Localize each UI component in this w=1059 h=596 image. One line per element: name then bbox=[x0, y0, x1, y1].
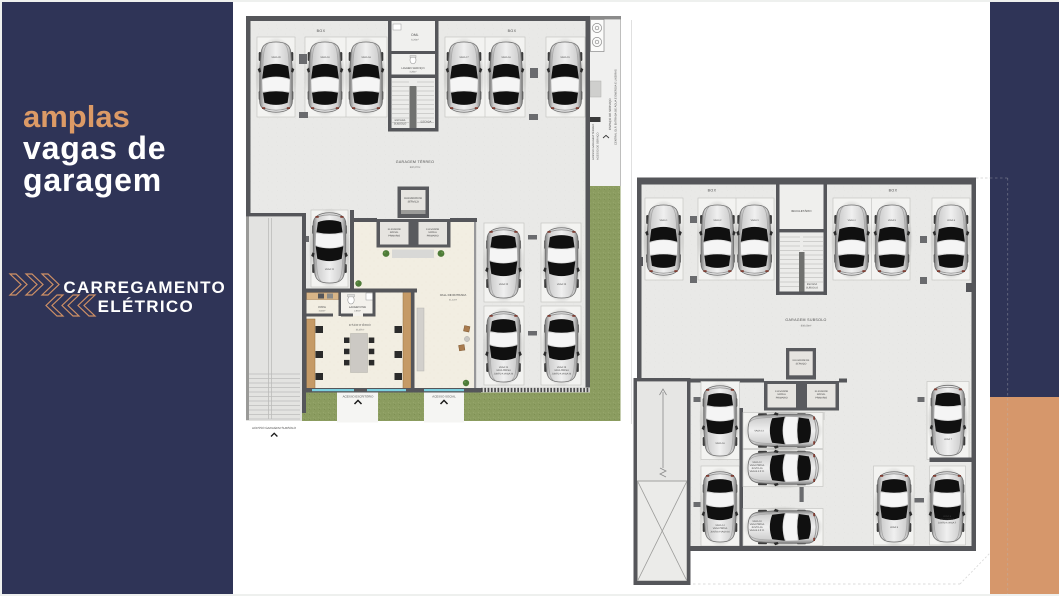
svg-text:VAGAS 9 E 11: VAGAS 9 E 11 bbox=[750, 529, 766, 532]
svg-text:VAGA 15: VAGA 15 bbox=[560, 56, 570, 59]
svg-text:VAGA 10: VAGA 10 bbox=[752, 520, 762, 523]
svg-text:VAGA 25: VAGA 25 bbox=[557, 366, 567, 369]
svg-text:VAGA 17: VAGA 17 bbox=[459, 56, 469, 59]
svg-text:JUNTO A VAGA 23: JUNTO A VAGA 23 bbox=[552, 372, 572, 375]
svg-text:VAGA 16: VAGA 16 bbox=[715, 442, 725, 445]
svg-text:3,68m²: 3,68m² bbox=[319, 310, 326, 313]
svg-text:LAVABO SERVIÇO: LAVABO SERVIÇO bbox=[401, 67, 424, 70]
svg-text:GARAGEM TÉRREO: GARAGEM TÉRREO bbox=[396, 159, 434, 164]
svg-text:VAGA 20: VAGA 20 bbox=[271, 56, 281, 59]
svg-text:VAGA 5: VAGA 5 bbox=[888, 219, 897, 222]
svg-text:CENTRAL GLP, ENTRADA DE ÁGUA E: CENTRAL GLP, ENTRADA DE ÁGUA E ENERGIA E… bbox=[614, 69, 618, 145]
svg-text:VAGA PRESA: VAGA PRESA bbox=[713, 527, 728, 530]
svg-text:3,28m²: 3,28m² bbox=[409, 71, 416, 74]
svg-text:41,22m²: 41,22m² bbox=[449, 299, 457, 302]
svg-text:332,07m²: 332,07m² bbox=[410, 166, 421, 169]
svg-text:JUNTO AS: JUNTO AS bbox=[751, 467, 763, 470]
svg-text:SUBSOLO: SUBSOLO bbox=[806, 286, 818, 289]
svg-text:VAGA 19: VAGA 19 bbox=[320, 56, 330, 59]
svg-text:PRIMARIO: PRIMARIO bbox=[815, 396, 827, 399]
svg-text:ACESSO SOCIAL: ACESSO SOCIAL bbox=[432, 395, 456, 399]
svg-text:JUNTO A VAGA 22: JUNTO A VAGA 22 bbox=[494, 372, 514, 375]
svg-text:VAGA 6: VAGA 6 bbox=[947, 219, 956, 222]
svg-text:VAGA 14: VAGA 14 bbox=[715, 524, 725, 527]
svg-text:VAGA PRESA: VAGA PRESA bbox=[496, 369, 511, 372]
svg-text:VAGA 12: VAGA 12 bbox=[752, 461, 762, 464]
svg-text:VAGAS 9 E 11: VAGAS 9 E 11 bbox=[750, 470, 766, 473]
svg-text:BOX: BOX bbox=[889, 189, 898, 193]
svg-text:COPA: COPA bbox=[318, 305, 326, 309]
svg-text:BOX: BOX bbox=[317, 29, 326, 33]
svg-text:VAGA 8: VAGA 8 bbox=[943, 515, 952, 518]
svg-text:VAGA 9: VAGA 9 bbox=[890, 526, 899, 529]
svg-text:VAGA 16: VAGA 16 bbox=[501, 56, 511, 59]
svg-text:PRIMARIO: PRIMARIO bbox=[388, 234, 400, 237]
svg-text:JUNTO A VAGA 7: JUNTO A VAGA 7 bbox=[938, 521, 957, 524]
svg-text:VAGA 22: VAGA 22 bbox=[499, 283, 509, 286]
svg-text:VAGA 7: VAGA 7 bbox=[944, 438, 953, 441]
svg-text:VAGA 3: VAGA 3 bbox=[751, 219, 760, 222]
svg-text:6,26m²: 6,26m² bbox=[411, 39, 419, 42]
svg-text:JUNTO A VAGA 16: JUNTO A VAGA 16 bbox=[710, 530, 730, 533]
svg-text:JUNTO AS: JUNTO AS bbox=[751, 526, 763, 529]
svg-text:ACESSO ESCRITÓRIO: ACESSO ESCRITÓRIO bbox=[343, 395, 375, 399]
svg-text:VAGA 1: VAGA 1 bbox=[659, 219, 668, 222]
svg-text:SUBSOLO: SUBSOLO bbox=[394, 123, 407, 126]
svg-text:GARAGEM SUBSOLO: GARAGEM SUBSOLO bbox=[785, 318, 826, 322]
svg-text:VAGA PRESA: VAGA PRESA bbox=[940, 518, 955, 521]
svg-text:ESCADA: ESCADA bbox=[421, 121, 432, 124]
svg-text:ACESSO DE SERVIÇO: ACESSO DE SERVIÇO bbox=[597, 133, 600, 160]
svg-text:ACESSO GARAGEM TÉRREO: ACESSO GARAGEM TÉRREO bbox=[591, 124, 595, 160]
svg-text:VAGA 4: VAGA 4 bbox=[848, 219, 857, 222]
svg-text:LAVABO PNE: LAVABO PNE bbox=[349, 305, 366, 309]
svg-text:ESCRITÓRIO: ESCRITÓRIO bbox=[349, 323, 371, 327]
svg-text:SERVIÇO: SERVIÇO bbox=[796, 362, 807, 365]
svg-text:VAGA PRESA: VAGA PRESA bbox=[554, 369, 569, 372]
svg-text:2,95m²: 2,95m² bbox=[354, 310, 361, 313]
svg-text:SERVIÇO: SERVIÇO bbox=[408, 201, 419, 204]
svg-text:ESPAÇO DE SERVIÇO: ESPAÇO DE SERVIÇO bbox=[608, 98, 612, 130]
svg-text:VAGA 13: VAGA 13 bbox=[754, 430, 764, 433]
svg-text:VAGA 21: VAGA 21 bbox=[325, 268, 335, 271]
svg-text:PRIMARIO: PRIMARIO bbox=[427, 234, 439, 237]
svg-text:DML: DML bbox=[411, 33, 418, 37]
svg-text:BOX: BOX bbox=[508, 29, 517, 33]
svg-text:BICICLETÁRIO: BICICLETÁRIO bbox=[791, 209, 812, 213]
svg-text:VAGA PRESA: VAGA PRESA bbox=[750, 464, 765, 467]
svg-text:VAGA 24: VAGA 24 bbox=[499, 366, 509, 369]
svg-text:VAGA 18: VAGA 18 bbox=[361, 56, 371, 59]
svg-text:33,07m²: 33,07m² bbox=[356, 329, 365, 332]
svg-text:VAGA 23: VAGA 23 bbox=[557, 283, 567, 286]
svg-text:HALL DE ENTRADA: HALL DE ENTRADA bbox=[440, 293, 467, 297]
svg-text:VAGA PRESA: VAGA PRESA bbox=[750, 523, 765, 526]
svg-text:VAGA 2: VAGA 2 bbox=[713, 219, 722, 222]
svg-text:BOX: BOX bbox=[708, 189, 717, 193]
svg-text:PRIMARIO: PRIMARIO bbox=[776, 396, 788, 399]
svg-text:808,08m²: 808,08m² bbox=[801, 325, 812, 328]
svg-text:ACESSO GARAGEM SUBSOLO: ACESSO GARAGEM SUBSOLO bbox=[252, 426, 297, 430]
